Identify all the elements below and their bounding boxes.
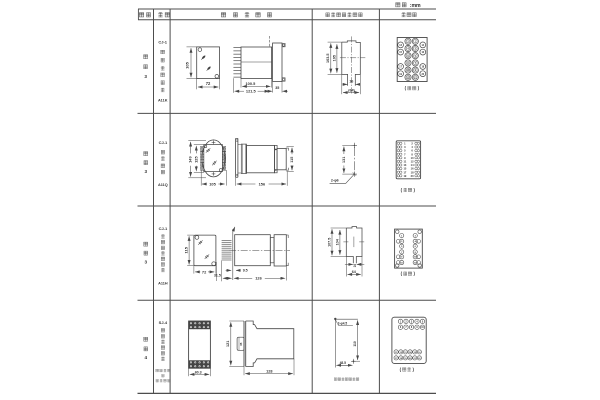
svg-text:105: 105	[185, 61, 190, 68]
svg-text:110: 110	[353, 341, 357, 346]
svg-text:60.3: 60.3	[195, 370, 202, 374]
svg-text:103.5: 103.5	[326, 53, 330, 63]
svg-text:A11H: A11H	[158, 281, 168, 285]
svg-text:48.5: 48.5	[340, 361, 347, 365]
svg-text:128: 128	[266, 369, 272, 373]
svg-text:A11K: A11K	[158, 99, 168, 103]
svg-text:105: 105	[209, 181, 216, 186]
svg-text:3: 3	[145, 259, 148, 264]
svg-text:CJ-1: CJ-1	[159, 226, 168, 231]
svg-text:9.5: 9.5	[243, 269, 248, 273]
svg-text:105: 105	[332, 55, 336, 61]
svg-text:121.5: 121.5	[246, 89, 257, 94]
svg-text:A11Q: A11Q	[158, 183, 168, 187]
svg-text:115: 115	[184, 246, 189, 253]
svg-text:35: 35	[239, 342, 243, 346]
svg-text:125: 125	[193, 156, 198, 163]
svg-text:CJ-1: CJ-1	[158, 40, 167, 45]
svg-text:104: 104	[335, 238, 339, 245]
svg-text:16: 16	[353, 264, 357, 268]
svg-text:4: 4	[145, 355, 148, 360]
svg-text:SJ-4: SJ-4	[159, 320, 168, 325]
svg-text::mm: :mm	[410, 3, 421, 9]
svg-text:126: 126	[255, 276, 262, 281]
svg-text:2-φ6: 2-φ6	[331, 179, 339, 183]
svg-text:72: 72	[206, 81, 211, 86]
svg-text:3: 3	[144, 74, 147, 79]
svg-text:107.5: 107.5	[327, 238, 331, 247]
svg-text:(64): (64)	[348, 89, 355, 93]
svg-text:2-φ4.5: 2-φ4.5	[338, 321, 348, 325]
svg-text:121: 121	[226, 341, 230, 347]
svg-text:115: 115	[290, 157, 294, 163]
svg-text:3: 3	[145, 169, 148, 174]
svg-text:131: 131	[342, 157, 346, 163]
svg-text:35: 35	[275, 86, 279, 90]
svg-text:149: 149	[188, 156, 193, 163]
svg-text:31.5: 31.5	[214, 273, 221, 277]
svg-text:100.5: 100.5	[246, 81, 257, 86]
svg-text:CJ-1: CJ-1	[159, 140, 168, 145]
svg-text:156: 156	[259, 181, 266, 186]
svg-text:16: 16	[349, 80, 353, 84]
